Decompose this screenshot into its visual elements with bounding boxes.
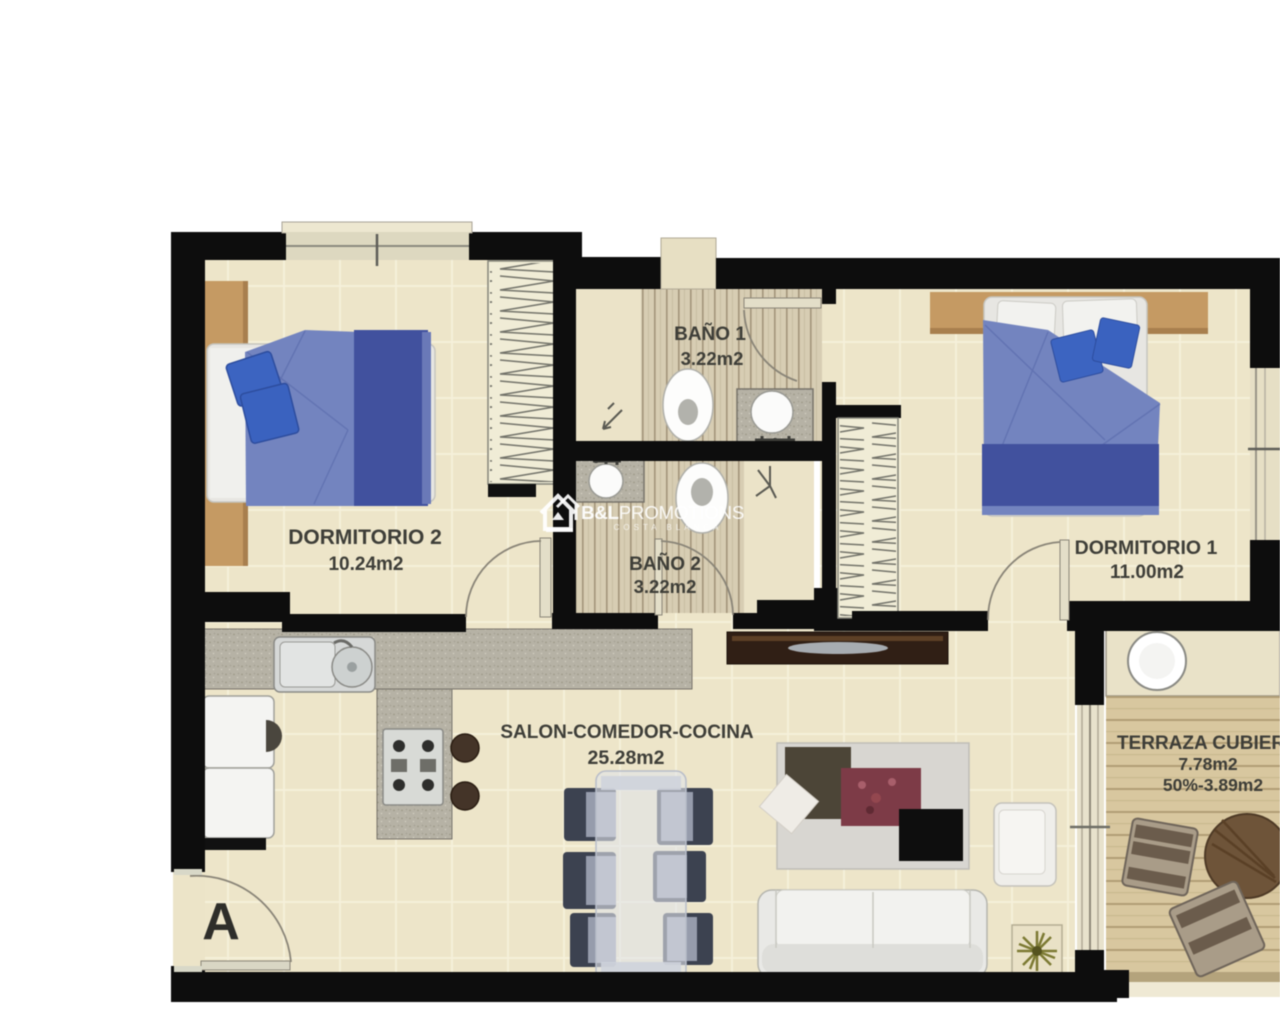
svg-text:11.00m2: 11.00m2 <box>1110 562 1184 583</box>
svg-text:A: A <box>202 893 240 951</box>
svg-text:BAÑO 1: BAÑO 1 <box>674 323 746 345</box>
svg-text:DORMITORIO 2: DORMITORIO 2 <box>288 526 442 549</box>
svg-text:3.22m2: 3.22m2 <box>634 576 697 597</box>
svg-text:10.24m2: 10.24m2 <box>328 554 403 575</box>
svg-text:B&LPROMOTIONS: B&LPROMOTIONS <box>581 502 744 523</box>
svg-text:COSTA BLANCA: COSTA BLANCA <box>614 523 723 532</box>
svg-text:BAÑO 2: BAÑO 2 <box>629 553 701 575</box>
svg-text:25.28m2: 25.28m2 <box>588 747 665 769</box>
svg-text:SALON-COMEDOR-COCINA: SALON-COMEDOR-COCINA <box>500 722 754 743</box>
svg-text:7.78m2: 7.78m2 <box>1178 754 1238 774</box>
svg-text:50%-3.89m2: 50%-3.89m2 <box>1163 775 1263 795</box>
svg-text:DORMITORIO 1: DORMITORIO 1 <box>1075 537 1218 559</box>
svg-text:3.22m2: 3.22m2 <box>681 348 744 369</box>
svg-text:TERRAZA CUBIERTA: TERRAZA CUBIERTA <box>1117 733 1280 754</box>
